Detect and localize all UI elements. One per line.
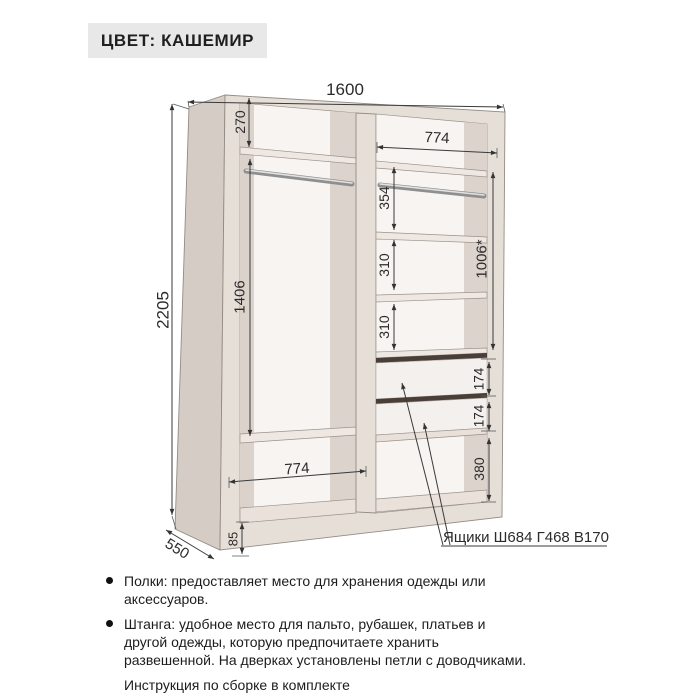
drawer-label: Ящики Ш684 Г468 В170 <box>443 529 609 546</box>
feature-line: Инструкция по сборке в комплекте <box>124 676 636 694</box>
feature-line: Полки: предоставляет место для хранения … <box>124 572 636 590</box>
dim-85: 85 <box>226 532 241 546</box>
feature-list: Полки: предоставляет место для хранения … <box>106 572 636 700</box>
bullet-dot <box>106 577 113 584</box>
dim-174a: 174 <box>472 367 487 390</box>
product-card: ЦВЕТ: КАШЕМИР <box>0 0 700 700</box>
dim-1600: 1600 <box>326 80 364 99</box>
feature-line: Штанга: удобное место для пальто, рубаше… <box>124 615 636 633</box>
dim-774-top: 774 <box>424 129 450 147</box>
dim-310a: 310 <box>376 253 392 277</box>
dim-1006: 1006* <box>474 239 491 278</box>
dim-310b: 310 <box>376 315 392 339</box>
dim-2205: 2205 <box>154 291 173 329</box>
partition-side-face <box>330 111 356 514</box>
wardrobe-carcass <box>175 95 505 550</box>
bullet-dot <box>106 620 113 627</box>
feature-line: другой одежды, которую предпочитаете хра… <box>124 633 636 651</box>
drawer-1 <box>376 358 487 399</box>
feature-line: развешенной. На дверках установлены петл… <box>124 651 636 669</box>
dim-270: 270 <box>232 110 248 134</box>
dim-1406: 1406 <box>232 280 249 313</box>
feature-rod: Штанга: удобное место для пальто, рубаше… <box>106 615 636 669</box>
center-partition <box>356 113 376 513</box>
right-wall-inner-face <box>464 122 487 505</box>
left-side-panel <box>175 95 225 550</box>
dim-774-bottom: 774 <box>284 460 310 479</box>
dim-174b: 174 <box>472 404 487 427</box>
feature-line: аксессуаров. <box>124 590 636 608</box>
dim-354: 354 <box>376 186 392 210</box>
dim-380: 380 <box>471 457 487 481</box>
dim-550: 550 <box>162 535 192 562</box>
feature-instruction: Инструкция по сборке в комплекте <box>106 676 636 694</box>
feature-shelves: Полки: предоставляет место для хранения … <box>106 572 636 608</box>
